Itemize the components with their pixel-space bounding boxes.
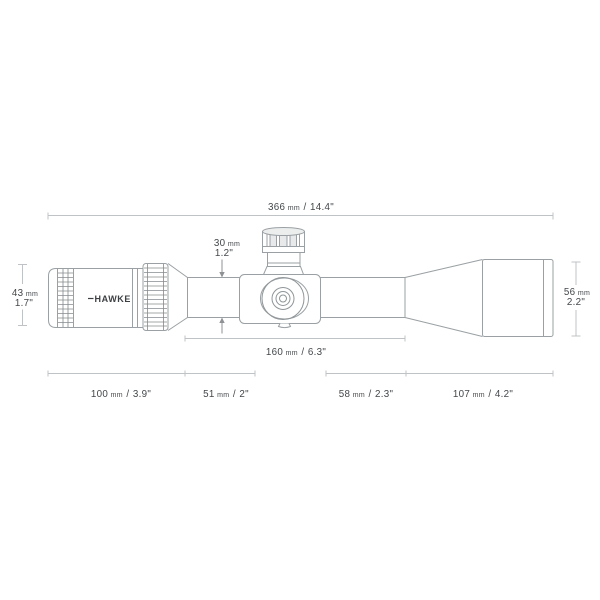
- dim-line-overall: [48, 213, 553, 220]
- riflescope-dimension-diagram: 366mm/14.4" HAWKE: [0, 0, 600, 600]
- dim-saddle-length: 160mm/6.3": [185, 336, 405, 359]
- dim-label-saddle: 160mm/6.3": [266, 347, 327, 358]
- dim-label-overall: 366mm/14.4": [268, 202, 334, 213]
- scope-outline: HAWKE: [49, 228, 554, 337]
- dim-label-tube-in: 1.2": [215, 248, 234, 259]
- tube-arrow-top-head: [219, 272, 224, 278]
- dim-label-seg4: 107mm/4.2": [453, 389, 514, 400]
- objective-bell: [483, 260, 554, 337]
- turret-cap-top: [263, 228, 305, 236]
- dim-line-saddle: [185, 336, 405, 342]
- zoom-ring: [143, 264, 168, 331]
- diagram-canvas: 366mm/14.4" HAWKE: [0, 0, 600, 600]
- elevation-turret: [263, 228, 305, 275]
- turret-base: [264, 267, 304, 275]
- saddle-bottom-lug: [279, 324, 291, 328]
- turret-stem: [268, 253, 301, 267]
- dim-label-eyepiece-in: 1.7": [15, 298, 34, 309]
- dim-tube-diameter: 30mm 1.2": [214, 238, 240, 334]
- eyepiece-taper: [168, 264, 188, 331]
- dim-label-seg2: 51mm/2": [203, 389, 249, 400]
- dim-label-seg1: 100mm/3.9": [91, 389, 152, 400]
- dim-label-objective-in: 2.2": [567, 297, 586, 308]
- dim-objective-diameter: 56mm 2.2": [564, 262, 590, 336]
- dim-overall-length: 366mm/14.4": [48, 202, 553, 220]
- objective-taper: [405, 260, 483, 337]
- tube-arrow-bottom-head: [219, 318, 224, 324]
- dim-eyepiece-diameter: 43mm 1.7": [12, 265, 38, 326]
- dim-line-bottom: [48, 371, 553, 377]
- brand-logo: HAWKE: [95, 294, 132, 304]
- dim-label-seg3: 58mm/2.3": [339, 389, 394, 400]
- turret-cap-flange: [263, 247, 305, 253]
- dim-bottom-segments: 100mm/3.9" 51mm/2" 58mm/2.3" 107mm/4.2": [48, 371, 553, 401]
